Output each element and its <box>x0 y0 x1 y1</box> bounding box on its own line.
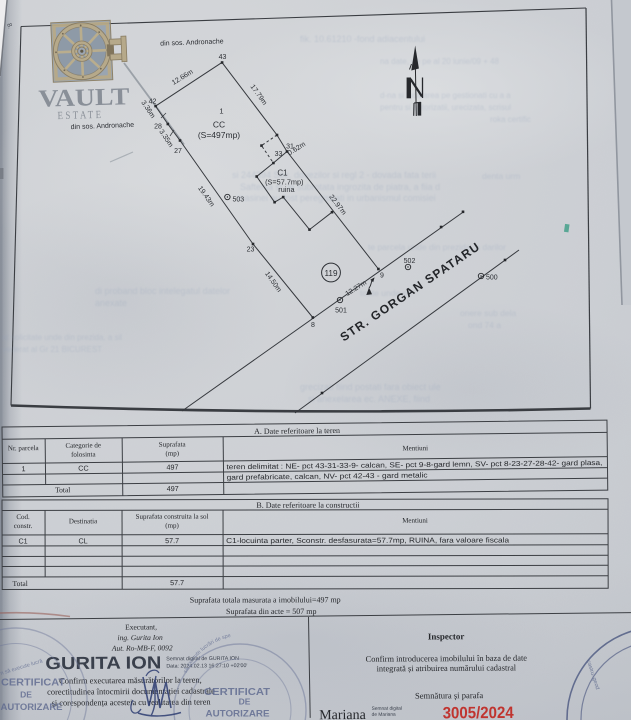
svg-text:Inspector: Inspector <box>428 631 465 641</box>
svg-text:Suprafata: Suprafata <box>159 440 187 448</box>
svg-text:C1: C1 <box>277 169 288 178</box>
svg-text:Mariana: Mariana <box>319 708 367 720</box>
svg-text:502: 502 <box>404 258 416 265</box>
svg-text:CL: CL <box>78 536 87 545</box>
svg-text:fik. 10.61210 -fond adiacentul: fik. 10.61210 -fond adiacentului <box>300 34 425 44</box>
svg-text:Total: Total <box>13 579 28 588</box>
svg-text:501: 501 <box>335 307 347 314</box>
svg-text:Destinatia: Destinatia <box>69 517 98 525</box>
svg-text:(mp): (mp) <box>165 449 179 457</box>
svg-text:DE: DE <box>20 690 32 700</box>
svg-text:ruina: ruina <box>278 185 295 194</box>
svg-text:CC: CC <box>78 464 88 473</box>
svg-text:C1: C1 <box>18 536 27 545</box>
svg-text:GURITA ION: GURITA ION <box>45 652 161 673</box>
svg-text:Aut. Ro-MB-F, 0092: Aut. Ro-MB-F, 0092 <box>111 643 173 652</box>
svg-text:VAULT: VAULT <box>38 83 130 112</box>
svg-text:Total: Total <box>55 485 70 494</box>
svg-text:Suprafata din acte = 507 mp: Suprafata din acte = 507 mp <box>226 607 317 616</box>
svg-text:denta urm: denta urm <box>482 171 520 181</box>
svg-text:57.7: 57.7 <box>165 536 179 545</box>
svg-text:d-na si locatarea pe gestionat: d-na si locatarea pe gestionati cu a a <box>380 91 511 100</box>
svg-text:497: 497 <box>166 463 178 472</box>
svg-text:497: 497 <box>167 484 179 493</box>
svg-text:Mentiuni: Mentiuni <box>402 444 428 452</box>
svg-text:Mentiuni: Mentiuni <box>402 517 428 525</box>
svg-text:si anexelarea ec. ANEXE, fiind: si anexelarea ec. ANEXE, fiind <box>308 394 430 404</box>
svg-text:roka certific: roka certific <box>490 115 531 124</box>
svg-text:1: 1 <box>21 464 25 473</box>
svg-text:ond 74 a: ond 74 a <box>468 320 501 330</box>
svg-text:33: 33 <box>275 151 283 158</box>
svg-text:119: 119 <box>324 269 337 278</box>
svg-text:(mp): (mp) <box>165 522 179 530</box>
svg-text:folosinta: folosinta <box>71 450 96 458</box>
svg-text:8: 8 <box>311 322 315 329</box>
svg-text:CERTIFICAT: CERTIFICAT <box>1 678 65 689</box>
svg-text:57.7: 57.7 <box>170 578 184 587</box>
svg-text:500: 500 <box>486 275 498 282</box>
svg-text:Executant,: Executant, <box>125 622 157 631</box>
svg-text:43: 43 <box>219 54 227 61</box>
svg-text:Semnat digital de GURITA ION: Semnat digital de GURITA ION <box>166 656 239 663</box>
svg-text:Categorie de: Categorie de <box>65 441 101 449</box>
svg-text:C1-locuinta parter, Sconstr. d: C1-locuinta parter, Sconstr. desfasurata… <box>226 535 509 545</box>
svg-text:di proband bloc intelegatul da: di proband bloc intelegatul datelor <box>95 286 230 296</box>
svg-text:Suprafata construita la sol: Suprafata construita la sol <box>136 513 209 521</box>
svg-text:anexate: anexate <box>95 298 127 308</box>
svg-text:3005/2024: 3005/2024 <box>443 704 515 720</box>
svg-text:Confirm introducerea imobilulu: Confirm introducerea imobilului în baza … <box>366 654 528 664</box>
svg-text:te parcela unde din prezida, a: te parcela unde din prezida, a darilor <box>368 242 506 252</box>
svg-text:CC: CC <box>213 120 225 130</box>
svg-text:AUTORIZARE: AUTORIZARE <box>1 702 63 713</box>
svg-text:1: 1 <box>219 107 223 116</box>
svg-text:9: 9 <box>380 273 384 280</box>
svg-text:ESTATE: ESTATE <box>57 109 103 122</box>
svg-text:vederat al Gr 21 BICUREST: vederat al Gr 21 BICUREST <box>2 345 102 354</box>
svg-text:grecizati fiind postati fara o: grecizati fiind postati fara obiect ule <box>300 382 441 392</box>
svg-text:at solicitate unde din prezida: at solicitate unde din prezida, a sil <box>2 333 122 342</box>
svg-text:ing. Gurita Ion: ing. Gurita Ion <box>117 633 163 642</box>
svg-text:B. Date referitoare la constru: B. Date referitoare la constructii <box>256 501 360 510</box>
svg-text:Cod.: Cod. <box>16 513 30 521</box>
svg-text:A. Date referitoare la teren: A. Date referitoare la teren <box>254 426 340 436</box>
svg-text:Semnat digital: Semnat digital <box>372 706 402 712</box>
svg-text:onere sub dela: onere sub dela <box>460 308 517 318</box>
svg-text:na date, de pe al 20 iunie/09: na date, de pe al 20 iunie/09 + 48 <box>380 57 500 66</box>
svg-text:Nr. parcela: Nr. parcela <box>8 444 40 452</box>
svg-text:DE: DE <box>239 697 251 707</box>
svg-text:503: 503 <box>233 197 245 204</box>
svg-text:constr.: constr. <box>14 522 33 530</box>
svg-text:AUTORIZARE: AUTORIZARE <box>206 709 270 720</box>
svg-text:27: 27 <box>174 148 182 155</box>
svg-text:Semnătura și parafa: Semnătura și parafa <box>415 690 483 700</box>
svg-text:CERTIFICAT: CERTIFICAT <box>204 687 270 698</box>
svg-text:de Mariana: de Mariana <box>372 712 396 718</box>
svg-text:pentru si autorizatii, ureciza: pentru si autorizatii, urecizata, scrisu… <box>380 103 511 112</box>
svg-text:Suprafata totala masurata a im: Suprafata totala masurata a imobilului=4… <box>190 595 341 604</box>
svg-text:23: 23 <box>247 247 255 254</box>
svg-text:integrată și atribuirea număru: integrată și atribuirea numărului cadast… <box>377 663 517 673</box>
svg-text:corectitudinea întocmirii docu: corectitudinea întocmirii documentației … <box>47 687 215 697</box>
svg-text:42: 42 <box>149 99 157 106</box>
svg-text:Data: 2024.02.13 16:27:10 +02': Data: 2024.02.13 16:27:10 +02'00' <box>166 663 247 670</box>
svg-text:(S=497mp): (S=497mp) <box>198 130 240 140</box>
